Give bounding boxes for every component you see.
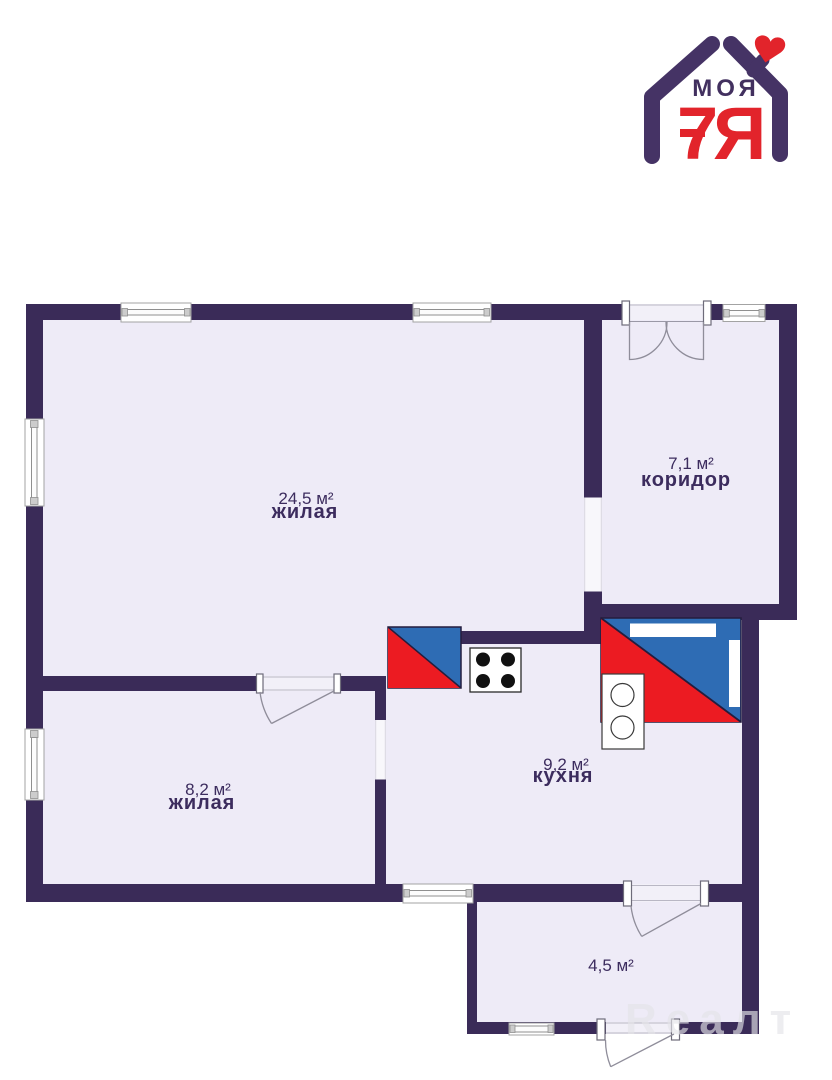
svg-text:4,5 м²: 4,5 м²: [588, 956, 634, 975]
svg-text:жилая: жилая: [271, 501, 338, 523]
svg-text:коридор: коридор: [641, 469, 731, 491]
svg-text:жилая: жилая: [168, 792, 235, 814]
svg-text:Reaлт: Reaлт: [625, 995, 800, 1044]
svg-text:кухня: кухня: [533, 765, 594, 787]
